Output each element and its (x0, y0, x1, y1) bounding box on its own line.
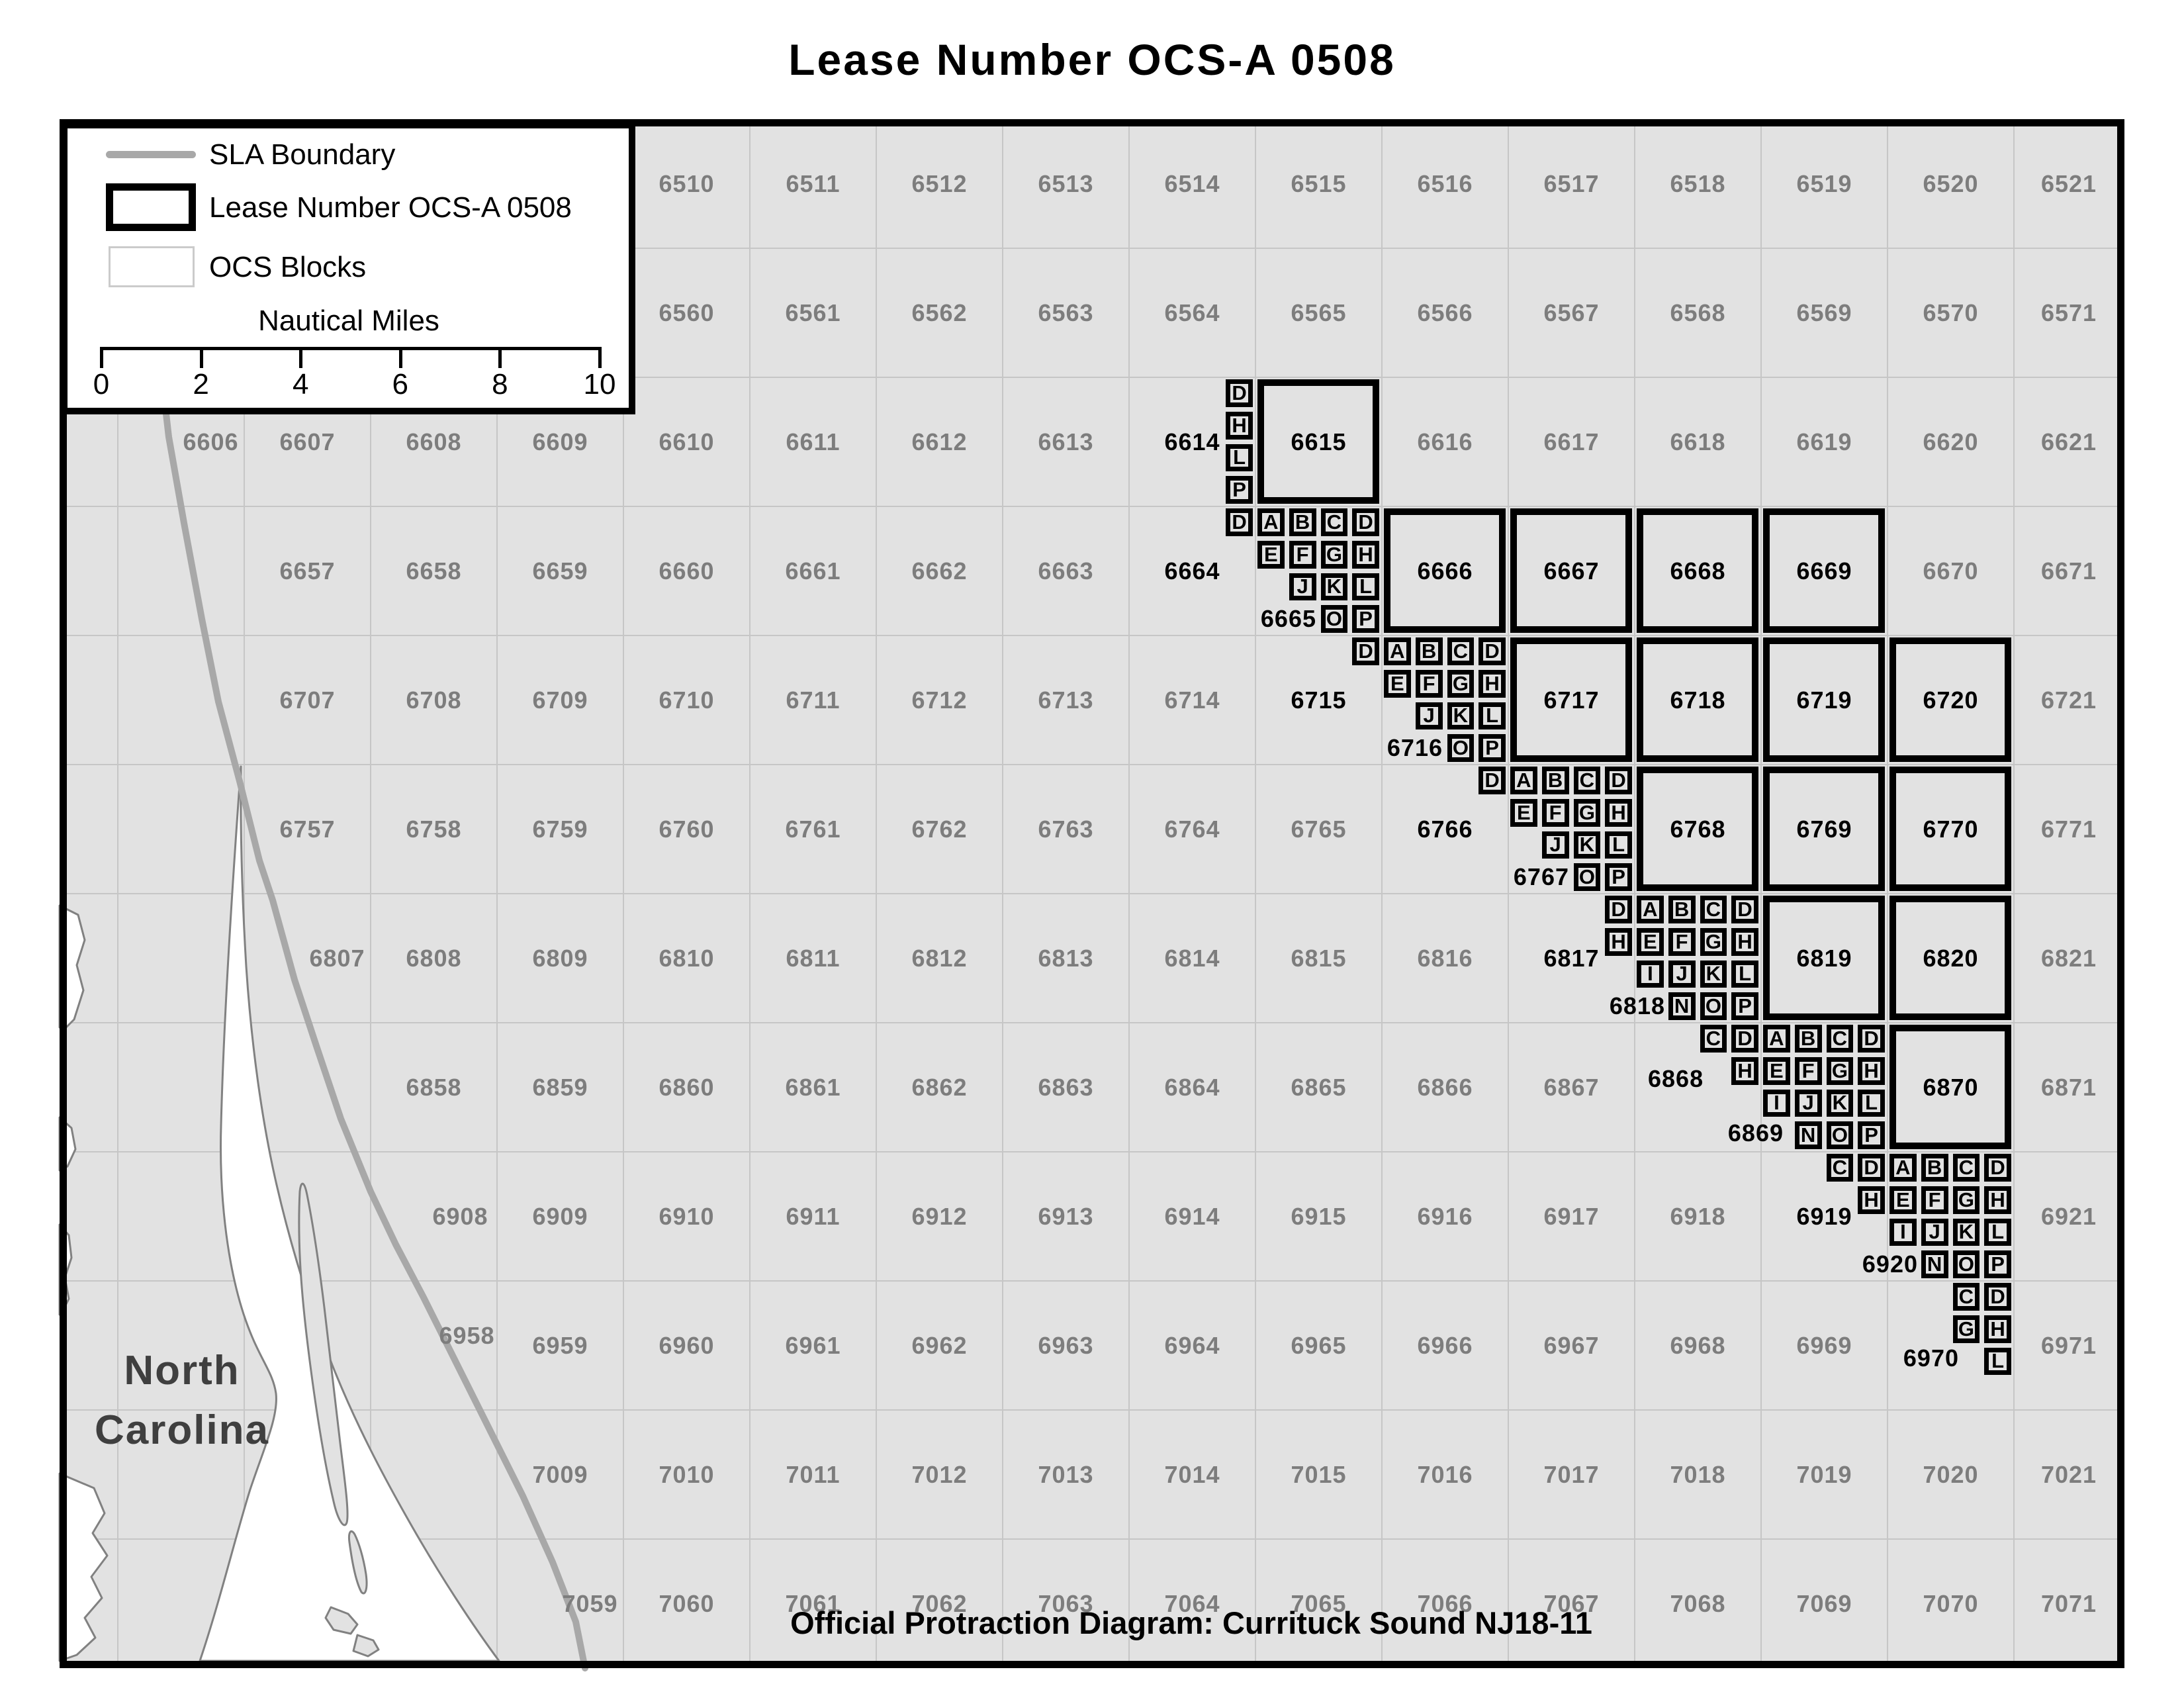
scale-tick-number: 8 (492, 368, 508, 401)
scale-tick (200, 347, 203, 368)
scale-tick-number: 6 (392, 368, 408, 401)
scale-tick-number: 0 (93, 368, 109, 401)
scale-tick-number: 4 (293, 368, 308, 401)
scale-tick-number: 2 (193, 368, 208, 401)
scale-tick (299, 347, 302, 368)
legend-lease-label: Lease Number OCS-A 0508 (209, 191, 572, 224)
lease-outline-swatch (106, 183, 196, 231)
ocs-blocks-swatch (109, 246, 195, 287)
page-title: Lease Number OCS-A 0508 (0, 34, 2184, 85)
scale-tick (399, 347, 402, 368)
scale-tick (100, 347, 103, 368)
legend-sla-label: SLA Boundary (209, 138, 395, 171)
scale-bar (101, 347, 600, 350)
legend: SLA Boundary Lease Number OCS-A 0508 OCS… (61, 122, 635, 414)
legend-ocs-blocks-label: OCS Blocks (209, 251, 366, 284)
lease-map-page: North Carolina 6510651165126513651465156… (0, 0, 2184, 1688)
scale-bar-title: Nautical Miles (68, 305, 630, 338)
scale-tick (598, 347, 602, 368)
sla-boundary-swatch (106, 151, 196, 158)
scale-tick (498, 347, 502, 368)
scale-tick-number: 10 (584, 368, 616, 401)
diagram-caption: Official Protraction Diagram: Currituck … (596, 1605, 1787, 1641)
